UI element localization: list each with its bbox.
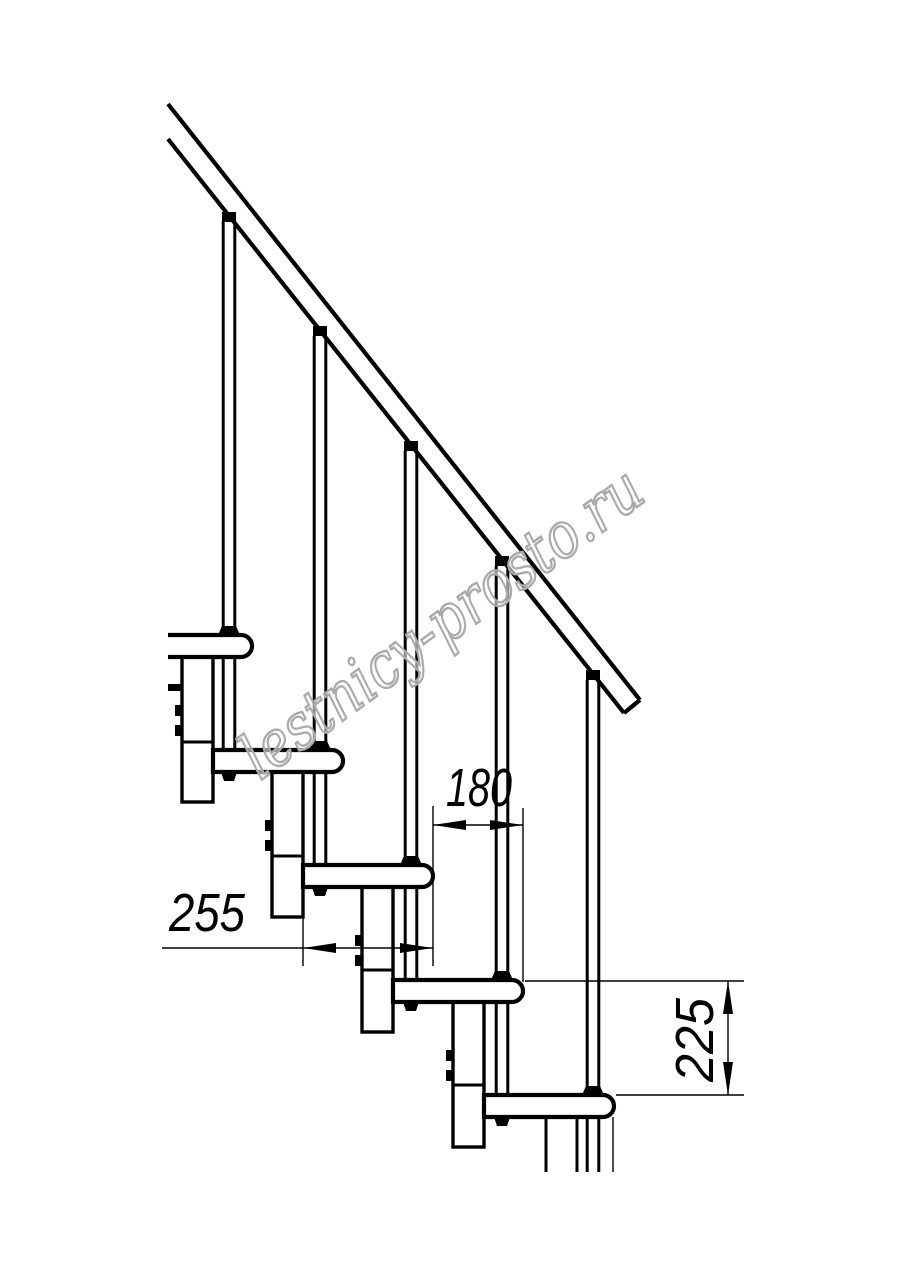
staircase-technical-drawing: 180 255 225 lestnicy-prosto.ru: [0, 0, 914, 1280]
bolt-tab: [265, 820, 272, 831]
support-module-5-cut: [546, 1117, 577, 1172]
tread-4: [393, 980, 523, 1002]
rail-collar: [404, 441, 418, 451]
support-module-1: [168, 657, 213, 802]
bolt-tab: [355, 935, 362, 946]
bolt-tab: [175, 705, 182, 716]
dimension-label-180: 180: [446, 758, 512, 818]
dimension-180: 180: [433, 758, 523, 982]
bolt-tab: [175, 725, 182, 736]
arrowhead-left: [303, 943, 336, 953]
rail-collar: [222, 212, 236, 222]
bolt-tab: [446, 1070, 453, 1081]
baluster-2: [313, 336, 327, 866]
baluster-1: [222, 222, 236, 752]
baluster-nut: [494, 1117, 510, 1126]
arrowhead-left: [433, 820, 466, 830]
baluster-foot: [218, 626, 240, 635]
baluster-foot: [491, 971, 513, 980]
rail-collar: [586, 670, 600, 680]
support-module-2: [265, 772, 303, 917]
drawing-page: 180 255 225 lestnicy-prosto.ru: [0, 0, 914, 1280]
dimension-label-225: 225: [665, 997, 725, 1083]
tread-1: [168, 635, 252, 657]
bolt-tab: [446, 1050, 453, 1061]
bolt-tab: [265, 840, 272, 851]
tread-3: [303, 865, 433, 887]
baluster-nut: [221, 772, 237, 781]
support-module-4: [446, 1002, 484, 1147]
baluster-3: [404, 451, 418, 981]
baluster-foot: [400, 856, 422, 865]
tread-5: [484, 1095, 614, 1117]
dimension-225: 225: [525, 981, 744, 1172]
baluster-4: [495, 566, 509, 1096]
baluster-nut: [312, 887, 328, 896]
support-module-3: [355, 887, 393, 1032]
cut-bolt-tab: [168, 684, 182, 691]
rail-collar: [313, 326, 327, 336]
baluster-foot: [582, 1086, 604, 1095]
dimension-label-255: 255: [168, 883, 246, 943]
baluster-nut: [403, 1002, 419, 1011]
bolt-tab: [355, 955, 362, 966]
